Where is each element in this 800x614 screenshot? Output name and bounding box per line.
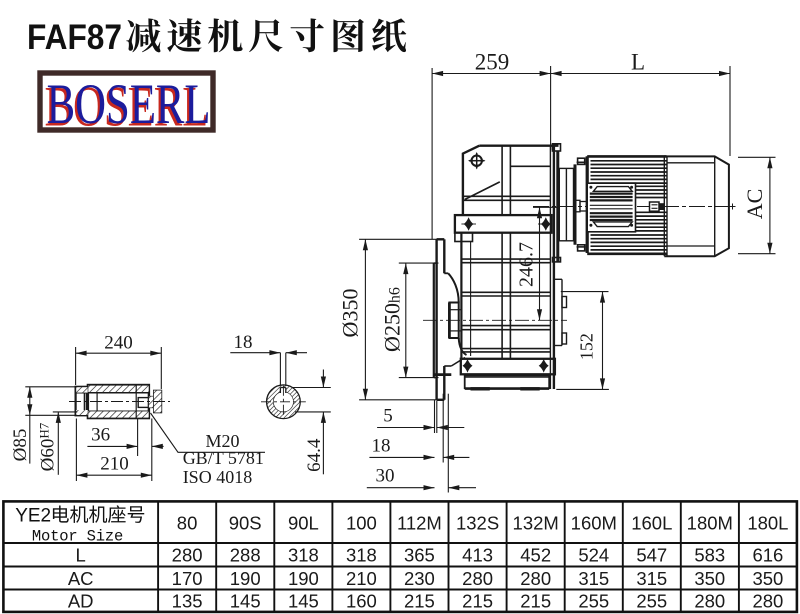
- svg-text:547: 547: [636, 545, 667, 566]
- svg-text:524: 524: [578, 545, 609, 566]
- svg-text:365: 365: [404, 545, 435, 566]
- svg-text:452: 452: [520, 545, 551, 566]
- svg-text:190: 190: [230, 568, 261, 589]
- svg-text:170: 170: [172, 568, 203, 589]
- svg-text:288: 288: [230, 545, 261, 566]
- svg-text:Motor Size: Motor Size: [32, 528, 123, 546]
- svg-text:210: 210: [100, 454, 129, 475]
- svg-text:318: 318: [346, 545, 377, 566]
- svg-text:L: L: [76, 545, 86, 566]
- svg-text:AC: AC: [68, 568, 94, 589]
- svg-text:ISO 4018: ISO 4018: [183, 467, 253, 487]
- svg-text:152: 152: [577, 333, 597, 360]
- svg-text:318: 318: [288, 545, 319, 566]
- svg-text:255: 255: [578, 591, 609, 612]
- svg-text:583: 583: [694, 545, 725, 566]
- svg-text:160L: 160L: [631, 513, 672, 534]
- svg-text:215: 215: [462, 591, 493, 612]
- svg-text:Ø350: Ø350: [338, 289, 363, 338]
- svg-text:280: 280: [520, 568, 551, 589]
- svg-text:280: 280: [694, 591, 725, 612]
- svg-text:160M: 160M: [571, 513, 617, 534]
- svg-text:230: 230: [404, 568, 435, 589]
- svg-text:413: 413: [462, 545, 493, 566]
- svg-text:180L: 180L: [747, 513, 788, 534]
- svg-text:190: 190: [288, 568, 319, 589]
- svg-text:240: 240: [104, 333, 133, 354]
- svg-text:132S: 132S: [456, 513, 499, 534]
- svg-text:259: 259: [475, 50, 510, 75]
- svg-text:36: 36: [91, 425, 110, 446]
- svg-text:112M: 112M: [397, 513, 442, 534]
- svg-text:90S: 90S: [229, 513, 262, 534]
- svg-text:BOSERL: BOSERL: [47, 72, 211, 135]
- svg-text:255: 255: [636, 591, 667, 612]
- svg-text:215: 215: [520, 591, 551, 612]
- svg-text:180M: 180M: [687, 513, 733, 534]
- svg-text:215: 215: [404, 591, 435, 612]
- svg-text:210: 210: [346, 568, 377, 589]
- svg-text:350: 350: [752, 568, 783, 589]
- svg-text:L: L: [631, 50, 645, 75]
- svg-text:350: 350: [694, 568, 725, 589]
- svg-text:132M: 132M: [513, 513, 559, 534]
- svg-text:145: 145: [288, 591, 319, 612]
- svg-text:135: 135: [172, 591, 203, 612]
- svg-text:64.4: 64.4: [304, 438, 325, 472]
- svg-text:80: 80: [177, 513, 198, 534]
- svg-text:AD: AD: [68, 591, 94, 612]
- svg-text:AC: AC: [742, 189, 767, 220]
- svg-text:100: 100: [346, 513, 377, 534]
- svg-text:5: 5: [383, 406, 393, 427]
- svg-text:18: 18: [372, 436, 391, 457]
- svg-text:280: 280: [172, 545, 203, 566]
- svg-text:160: 160: [346, 591, 377, 612]
- svg-text:18: 18: [234, 332, 253, 353]
- svg-text:GB/T 5781: GB/T 5781: [183, 448, 264, 468]
- svg-text:280: 280: [752, 591, 783, 612]
- svg-text:616: 616: [752, 545, 783, 566]
- svg-text:90L: 90L: [288, 513, 319, 534]
- svg-text:Ø85: Ø85: [10, 429, 31, 462]
- svg-text:246.7: 246.7: [516, 242, 538, 287]
- svg-text:315: 315: [636, 568, 667, 589]
- svg-text:FAF87: FAF87: [27, 18, 122, 57]
- svg-text:280: 280: [462, 568, 493, 589]
- svg-text:145: 145: [230, 591, 261, 612]
- svg-text:30: 30: [376, 466, 395, 487]
- svg-text:315: 315: [578, 568, 609, 589]
- svg-text:YE2: YE2: [15, 505, 51, 526]
